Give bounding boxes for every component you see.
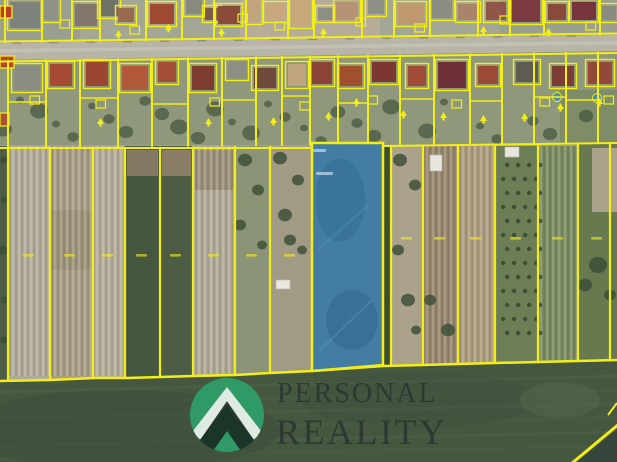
orchard-tree [501, 317, 505, 321]
tree [284, 235, 296, 246]
tree [52, 121, 60, 128]
building-marker-icon [547, 34, 549, 37]
tree [0, 336, 8, 343]
tree [0, 156, 8, 163]
house-roof [248, 0, 260, 22]
white-shed-roof [505, 147, 519, 157]
parcel-number-faint [552, 237, 563, 240]
orchard-tree [527, 219, 531, 223]
orchard-tree [501, 233, 505, 237]
orchard-tree [512, 317, 516, 321]
orchard-tree [505, 247, 509, 251]
house-roof [44, 0, 58, 20]
building-marker-icon [482, 32, 484, 35]
orchard-tree [523, 289, 527, 293]
orchard-tree [516, 163, 520, 167]
highlighted-parcel [312, 143, 383, 371]
aerial-map-screenshot: PERSONAL REALITY [0, 0, 617, 462]
orchard-tree [516, 275, 520, 279]
tree [191, 132, 205, 144]
orchard-tree [523, 205, 527, 209]
orchard-tree [505, 163, 509, 167]
building-marker-icon [99, 124, 101, 127]
tree [273, 152, 287, 165]
white-shed-roof [430, 155, 442, 171]
house-roof [432, 0, 452, 18]
tree [119, 126, 133, 138]
house-roof [548, 4, 566, 20]
orchard-tree [505, 219, 509, 223]
parcel-number-faint [284, 254, 295, 257]
tree [155, 108, 169, 120]
orchard-tree [523, 317, 527, 321]
house-roof [438, 62, 466, 88]
house-roof [398, 4, 424, 24]
orchard-tree [501, 177, 505, 181]
orchard-tree [505, 331, 509, 335]
building-marker-icon [272, 123, 274, 126]
orchard-tree [527, 247, 531, 251]
house-roof [572, 2, 596, 20]
parcel-number-faint [316, 172, 333, 175]
tree [257, 241, 267, 250]
field-light [520, 382, 600, 418]
tree [67, 132, 78, 142]
orchard-tree [527, 275, 531, 279]
house-roof [552, 66, 574, 86]
house-roof [512, 0, 540, 22]
house-roof [150, 4, 174, 24]
parcel-number-faint [102, 254, 113, 257]
house-roof [340, 66, 362, 86]
house-roof [122, 66, 148, 90]
tree [392, 245, 404, 256]
orchard-tree [501, 289, 505, 293]
house-roof [228, 62, 246, 78]
tree [103, 114, 114, 124]
house-roof [408, 66, 426, 86]
orchard-tree [512, 261, 516, 265]
building-marker-icon [207, 124, 209, 127]
watermark-text-line1: PERSONAL [277, 378, 438, 409]
house-roof [318, 8, 332, 20]
orchard-tree [527, 303, 531, 307]
tree [238, 154, 252, 167]
tree [409, 180, 421, 191]
orchard-tree [512, 205, 516, 209]
white-shed-roof [276, 280, 290, 289]
house-roof [478, 66, 498, 84]
tree [476, 123, 484, 130]
orchard-tree [505, 303, 509, 307]
parcel-number-faint [313, 149, 326, 152]
house-roof [588, 62, 612, 84]
tree [300, 125, 308, 132]
tree [543, 128, 557, 140]
tree [278, 209, 292, 222]
orchard-tree [501, 261, 505, 265]
tree [393, 154, 407, 167]
house-roof [118, 8, 134, 22]
tree [579, 110, 593, 122]
building-marker-icon [167, 30, 169, 33]
house-roof [50, 64, 72, 86]
tree [228, 119, 236, 126]
watermark-text-line2: REALITY [276, 412, 447, 452]
tree [292, 175, 304, 186]
orchard-tree [523, 261, 527, 265]
tree [441, 324, 455, 337]
orchard-tree [516, 303, 520, 307]
tree [170, 120, 188, 135]
building-marker-icon [322, 34, 324, 37]
house-roof [186, 0, 202, 14]
house-roof [86, 62, 108, 86]
house-roof [368, 0, 384, 14]
house-roof [266, 4, 286, 20]
tree [440, 99, 448, 106]
orchard-tree [516, 247, 520, 251]
orchard-tree [512, 233, 516, 237]
parcel-number-faint [591, 237, 602, 240]
watermark-logo: PERSONAL REALITY [190, 378, 447, 455]
orchard-tree [516, 219, 520, 223]
tree [297, 246, 307, 255]
tree [252, 185, 264, 196]
house-roof [218, 6, 240, 24]
building-marker-icon [523, 119, 525, 122]
tree [411, 326, 421, 335]
tree [351, 118, 362, 128]
house-roof [10, 2, 40, 28]
parcel-number-faint [208, 254, 219, 257]
house-roof [372, 62, 396, 82]
house-roof [288, 64, 306, 86]
orchard-tree [505, 191, 509, 195]
parcel-number-faint [246, 254, 257, 257]
house-roof [486, 2, 506, 20]
tree [139, 96, 150, 106]
building-marker-icon [598, 104, 600, 107]
tree [401, 294, 415, 307]
house-roof [336, 2, 358, 20]
orchard-tree [527, 331, 531, 335]
parcel-number-faint [401, 237, 412, 240]
aerial-map: PERSONAL REALITY [0, 0, 617, 462]
building-marker-icon [482, 121, 484, 124]
building-marker-icon [355, 104, 357, 107]
house-roof [192, 66, 214, 90]
house-roof [458, 4, 478, 20]
tree [491, 134, 502, 144]
tree [382, 100, 400, 115]
orchard-tree [501, 205, 505, 209]
orchard-tree [516, 191, 520, 195]
house-roof [14, 66, 40, 90]
building-marker-icon [442, 118, 444, 121]
house-roof [254, 68, 276, 88]
tree [242, 126, 260, 141]
building-marker-icon [402, 116, 404, 119]
tree [264, 101, 272, 108]
orchard-tree [527, 191, 531, 195]
house-roof [75, 4, 97, 26]
orchard-tree [505, 275, 509, 279]
tree [424, 295, 436, 306]
building-marker-icon [117, 36, 119, 39]
parcel-number-faint [510, 237, 521, 240]
tree [88, 103, 96, 110]
parcel-number-faint [23, 254, 34, 257]
parcel-number-faint [64, 254, 75, 257]
tree [578, 279, 592, 292]
tree [589, 257, 607, 273]
orchard-tree [512, 289, 516, 293]
orchard-tree [527, 163, 531, 167]
house-roof [158, 62, 176, 82]
orchard-tree [523, 233, 527, 237]
building-marker-icon [559, 109, 561, 112]
orchard-tree [523, 177, 527, 181]
house-roof [292, 0, 310, 26]
parcel-number-faint [136, 254, 147, 257]
parcel-number-faint [170, 254, 181, 257]
building-marker-icon [327, 118, 329, 121]
house-roof [312, 62, 332, 84]
house-roof [602, 6, 616, 20]
house-roof [205, 8, 219, 20]
building-marker-icon [220, 34, 222, 37]
parcel-number-faint [434, 237, 445, 240]
parcel-number-faint [470, 237, 481, 240]
orchard-tree [512, 177, 516, 181]
orchard-tree [516, 331, 520, 335]
